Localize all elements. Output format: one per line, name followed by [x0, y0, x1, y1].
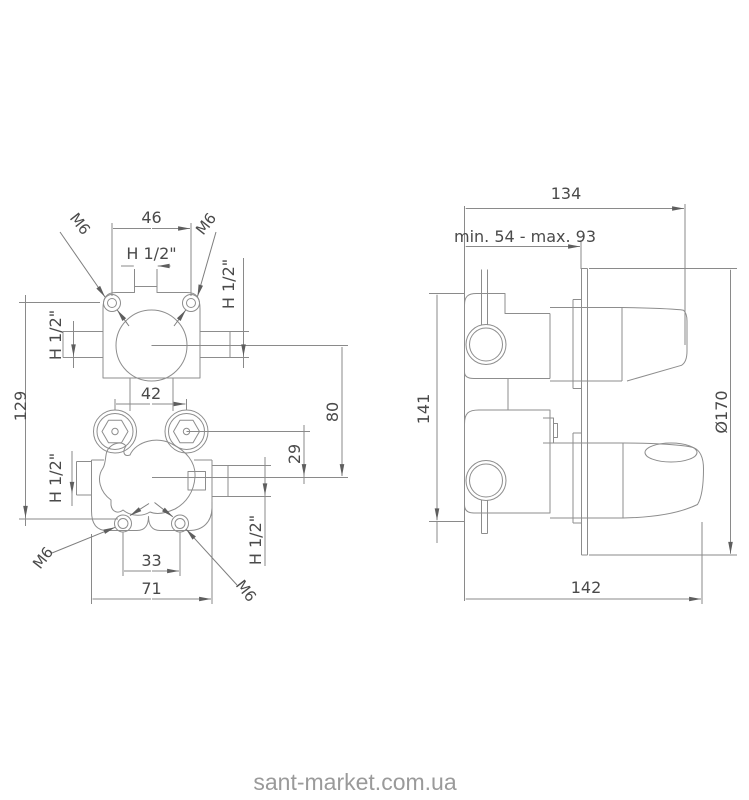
dim-label-170: Ø170 — [712, 390, 731, 433]
dim-valve-center-distance: 80 — [323, 347, 342, 476]
wall-plate — [582, 269, 588, 556]
diverter-knob — [550, 433, 704, 523]
dim-lower-hole-spacing: 33 — [123, 533, 180, 577]
label-m6-bottom-left: M6 — [29, 544, 57, 573]
dim-top-inlet: H 1/2" — [121, 244, 177, 288]
dim-label-134: 134 — [551, 184, 582, 203]
upper-knob-sleeve — [573, 300, 582, 389]
dim-installation-depth: min. 54 - max. 93 — [454, 227, 596, 269]
dim-label-29: 29 — [285, 444, 304, 464]
dim-label-lower-right-port: H 1/2" — [246, 515, 265, 565]
lower-knob-sleeve — [573, 433, 582, 523]
dim-overall-depth: 134 — [466, 184, 685, 345]
upper-body-side — [465, 270, 551, 411]
side-view: 134 min. 54 - max. 93 141 Ø170 142 — [414, 184, 737, 604]
thermostat-knob — [550, 300, 687, 389]
dim-label-top-inlet: H 1/2" — [126, 244, 176, 263]
technical-drawing: 46 H 1/2" M6 M6 H 1/2" — [0, 0, 749, 800]
dim-label-42: 42 — [141, 384, 161, 403]
dim-upper-left-port: H 1/2" — [46, 310, 74, 368]
front-view: 46 H 1/2" M6 M6 H 1/2" — [11, 208, 348, 605]
dim-label-46: 46 — [141, 208, 161, 227]
watermark-text: sant-market.com.ua — [253, 769, 456, 795]
label-m6-top-left: M6 — [66, 210, 94, 239]
upper-right-port-stub — [200, 332, 230, 358]
dim-label-80: 80 — [323, 402, 342, 422]
dim-label-142: 142 — [571, 578, 602, 597]
lower-pipe-stub — [482, 500, 488, 534]
dim-label-upper-left-port: H 1/2" — [46, 310, 65, 360]
dim-label-33: 33 — [141, 551, 161, 570]
dim-overall-width: 142 — [466, 522, 702, 604]
dim-upper-right-port: H 1/2" — [219, 258, 249, 368]
dim-hex-to-center: 29 — [285, 425, 304, 484]
dim-label-141: 141 — [414, 394, 433, 425]
lower-valve-body — [77, 410, 229, 532]
upper-pipe-stub — [482, 270, 488, 326]
thread-callout-bottom-right: M6 — [155, 503, 260, 606]
lower-housing — [92, 460, 213, 531]
label-m6-bottom-right: M6 — [232, 577, 260, 606]
upper-left-port-stub — [63, 332, 103, 358]
lower-left-port-stub — [77, 462, 92, 496]
dim-label-129: 129 — [11, 391, 30, 422]
dim-plate-diameter: Ø170 — [589, 269, 737, 556]
hex-union-left — [94, 410, 137, 453]
dim-lower-left-port: H 1/2" — [46, 451, 72, 506]
diverter-tab — [188, 472, 206, 491]
dim-label-min-max: min. 54 - max. 93 — [454, 227, 596, 246]
knob-grip-recess — [645, 443, 697, 462]
dim-label-upper-right-port: H 1/2" — [219, 259, 238, 309]
dim-label-71: 71 — [141, 579, 161, 598]
dim-hex-spacing: 42 — [115, 384, 187, 410]
lower-right-port-stub — [212, 466, 228, 497]
dim-body-height: 141 — [414, 294, 464, 544]
dim-lower-right-port: H 1/2" — [228, 457, 271, 566]
dim-label-lower-left-port: H 1/2" — [46, 453, 65, 503]
lower-body-side — [465, 410, 558, 534]
